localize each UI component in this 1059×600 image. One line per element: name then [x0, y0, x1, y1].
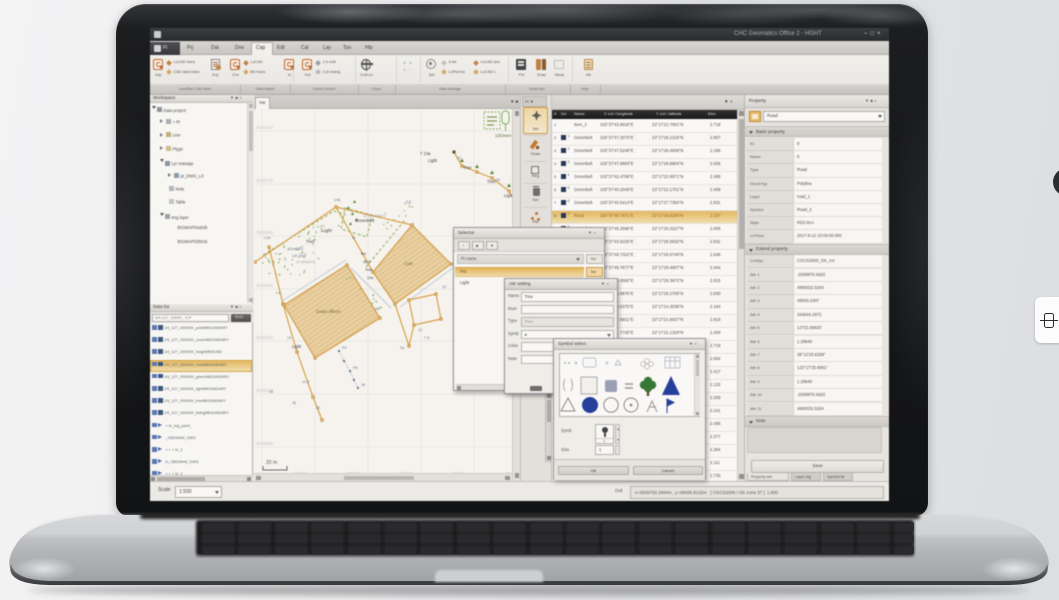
- svg-text:J6: J6: [316, 406, 320, 410]
- svg-text:Grass offices: Grass offices: [316, 309, 340, 314]
- svg-text:J4: J4: [269, 390, 273, 394]
- svg-text:t3: t3: [352, 236, 355, 240]
- svg-text:Light: Light: [292, 344, 302, 349]
- svg-text:12 acre(m2): 12 acre(m2): [296, 260, 315, 264]
- svg-text:Tree: Tree: [306, 239, 315, 244]
- svg-text:P4: P4: [342, 346, 347, 350]
- svg-text:J1.4: J1.4: [302, 380, 309, 384]
- svg-text:12Green: 12Green: [495, 133, 512, 138]
- svg-text:b2: b2: [496, 178, 500, 182]
- svg-text:12: 12: [442, 285, 446, 289]
- svg-text:3545750: 3545750: [256, 125, 274, 130]
- svg-text:12n42(1): 12n42(1): [288, 247, 304, 251]
- svg-text:Tree: Tree: [463, 165, 472, 170]
- svg-text:7.5: 7.5: [424, 336, 429, 340]
- svg-text:12: 12: [418, 328, 422, 332]
- svg-text:20 m: 20 m: [266, 460, 277, 466]
- svg-text:36.2: 36.2: [363, 260, 370, 264]
- svg-text:Rd: Rd: [361, 252, 366, 256]
- svg-text:7 13a: 7 13a: [420, 151, 431, 156]
- svg-text:L14: L14: [264, 236, 270, 240]
- svg-text:14a: 14a: [334, 198, 341, 202]
- svg-text:3545700: 3545700: [256, 178, 274, 183]
- svg-text:2.4: 2.4: [406, 200, 411, 204]
- svg-text:P5: P5: [353, 366, 358, 370]
- svg-text:J6: J6: [292, 401, 296, 405]
- svg-text:3545450: 3545450: [256, 441, 274, 446]
- svg-text:Light: Light: [322, 228, 333, 233]
- svg-text:Cust: Cust: [404, 261, 413, 266]
- svg-text:26: 26: [375, 307, 379, 311]
- svg-text:12 tree AAA12: 12 tree AAA12: [363, 214, 386, 218]
- svg-text:12a: 12a: [367, 276, 374, 280]
- svg-text:3545650: 3545650: [256, 230, 274, 235]
- svg-text:Tree: Tree: [487, 179, 496, 184]
- svg-text:Light: Light: [428, 158, 438, 163]
- svg-text:J8: J8: [361, 383, 365, 387]
- svg-text:3545550: 3545550: [256, 335, 274, 340]
- svg-text:Greenbelt: Greenbelt: [355, 218, 375, 223]
- svg-text:3545600: 3545600: [256, 283, 274, 288]
- svg-text:L4: L4: [276, 291, 280, 295]
- svg-text:14: 14: [287, 336, 291, 340]
- svg-text:12r Tree: 12r Tree: [292, 254, 306, 258]
- svg-text:b1: b1: [457, 156, 461, 160]
- svg-text:Tree: Tree: [365, 268, 373, 272]
